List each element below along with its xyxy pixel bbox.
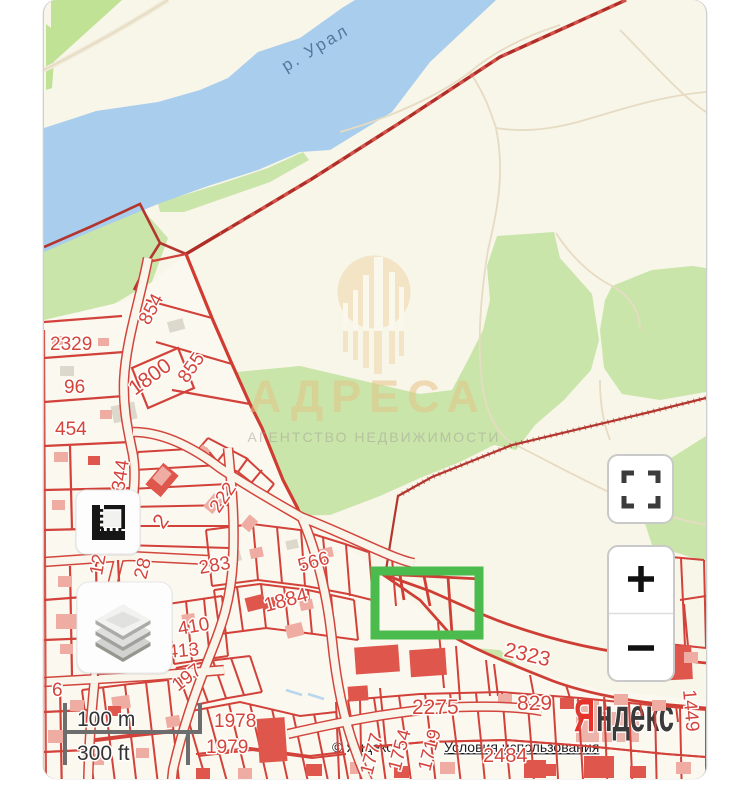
svg-text:1449: 1449: [678, 689, 703, 733]
svg-text:2329: 2329: [50, 334, 92, 355]
svg-text:100 m: 100 m: [77, 708, 135, 731]
svg-text:454: 454: [55, 419, 87, 440]
svg-text:300 ft: 300 ft: [77, 742, 130, 765]
svg-text:1979: 1979: [206, 737, 248, 758]
svg-text:96: 96: [64, 377, 85, 398]
svg-text:АГЕНТСТВО НЕДВИЖИМОСТИ: АГЕНТСТВО НЕДВИЖИМОСТИ: [248, 429, 501, 445]
svg-text:829: 829: [517, 692, 552, 715]
svg-text:1978: 1978: [214, 711, 256, 732]
svg-text:АДРЕСА: АДРЕСА: [249, 371, 487, 422]
svg-text:6: 6: [52, 680, 63, 701]
svg-text:2275: 2275: [412, 696, 459, 719]
svg-text:2484: 2484: [483, 745, 528, 767]
